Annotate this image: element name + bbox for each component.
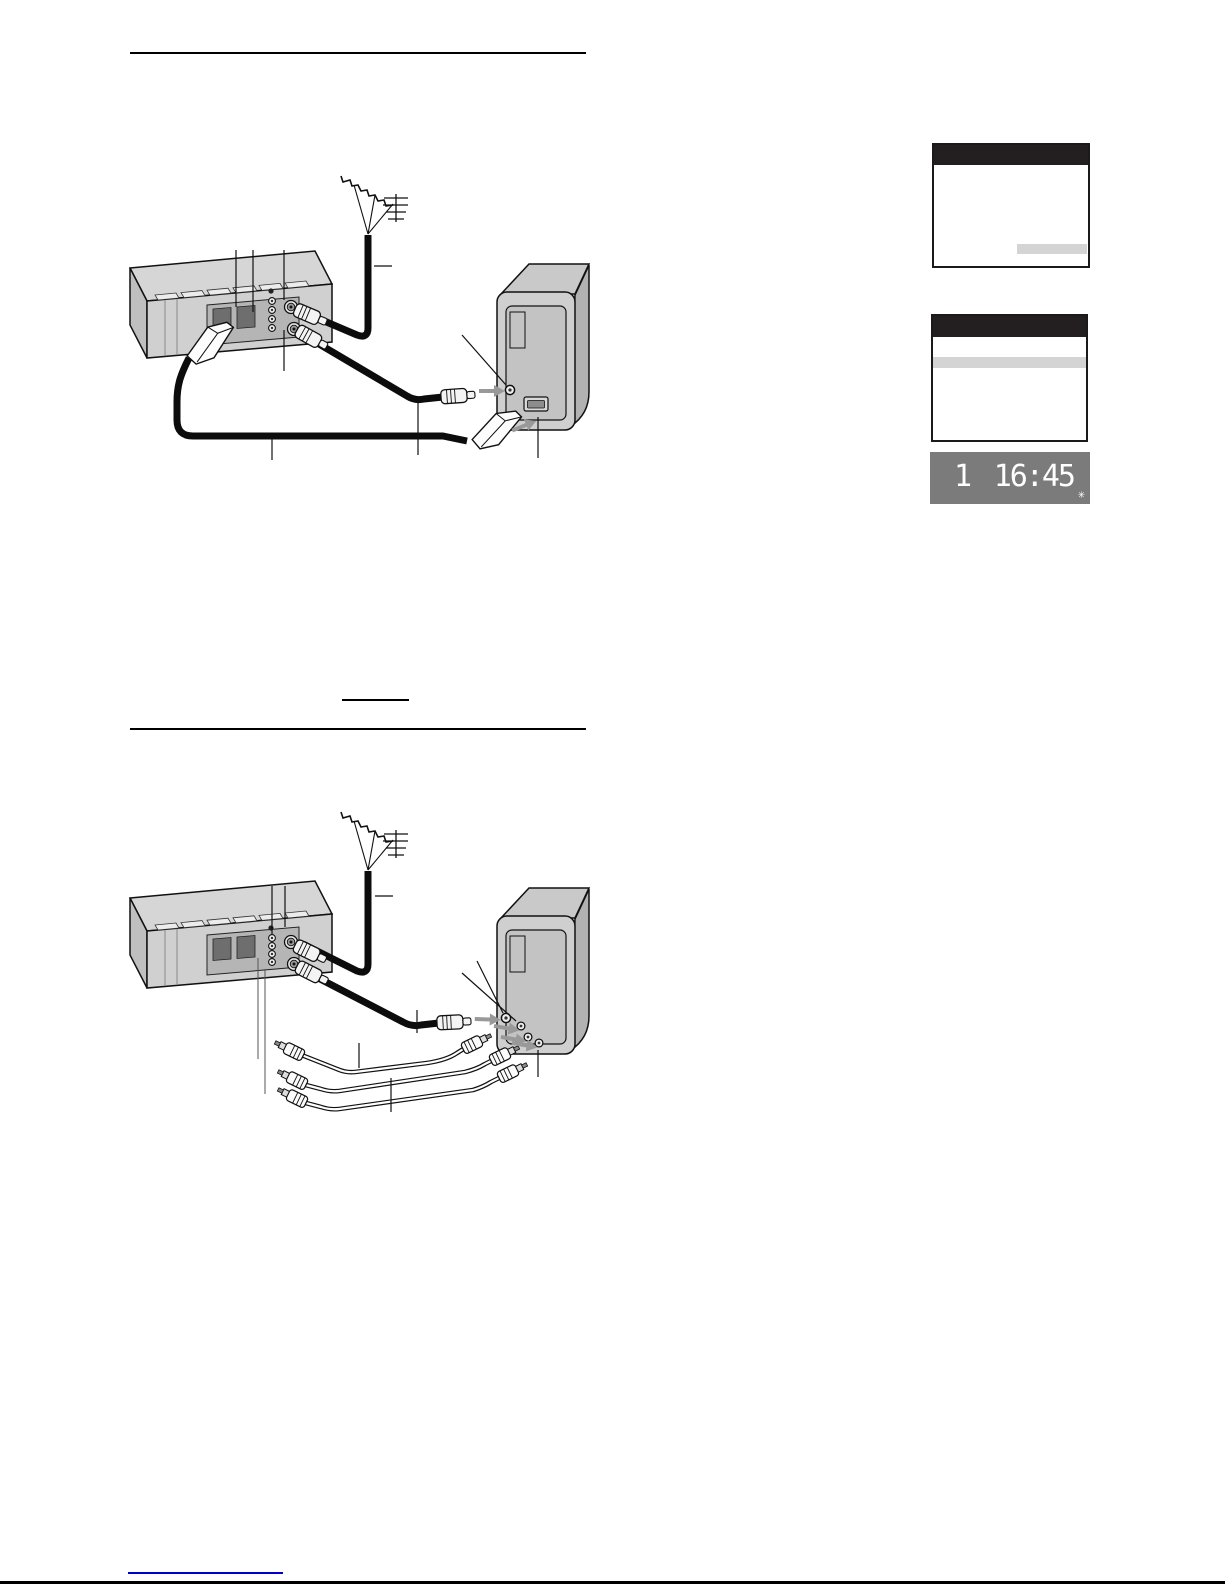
- display-program-position: 1: [954, 462, 972, 492]
- phono-plug-icon: [273, 1037, 306, 1061]
- front-panel-display: 1 16:45 ✳: [930, 452, 1090, 504]
- tv-scart-socket: [524, 397, 548, 411]
- menu-title-bar: [934, 145, 1088, 165]
- manual-page: 1 16:45 ✳: [0, 0, 1225, 1585]
- phono-plug-icon: [276, 1066, 309, 1090]
- menu-highlight-row: [933, 357, 1086, 368]
- inline-underline: [342, 699, 409, 701]
- connection-diagram-scart: [125, 158, 595, 472]
- display-clock-time: 16:45: [994, 462, 1074, 492]
- tv-menu-screen-2: [931, 314, 1088, 442]
- aerial-plug-icon: [441, 388, 476, 404]
- blink-indicator-icon: ✳: [1078, 488, 1085, 500]
- section-rule-top: [130, 52, 586, 54]
- antenna-icon: [341, 176, 408, 234]
- antenna-icon: [341, 812, 408, 870]
- section-rule-middle: [130, 728, 586, 730]
- menu-title-bar: [933, 316, 1086, 337]
- av-phono-cables: [299, 1048, 501, 1109]
- tv-aerial-input-jack: [505, 385, 514, 394]
- connection-diagram-av-cables: [125, 772, 605, 1120]
- phono-plug-icon: [460, 1030, 493, 1054]
- tv-menu-screen-1: [932, 143, 1090, 268]
- page-bottom-rule: [0, 1581, 1225, 1584]
- footer-hyperlink-line[interactable]: [128, 1572, 283, 1574]
- aerial-plug-icon: [437, 1014, 472, 1030]
- menu-highlight-bar: [1017, 244, 1087, 254]
